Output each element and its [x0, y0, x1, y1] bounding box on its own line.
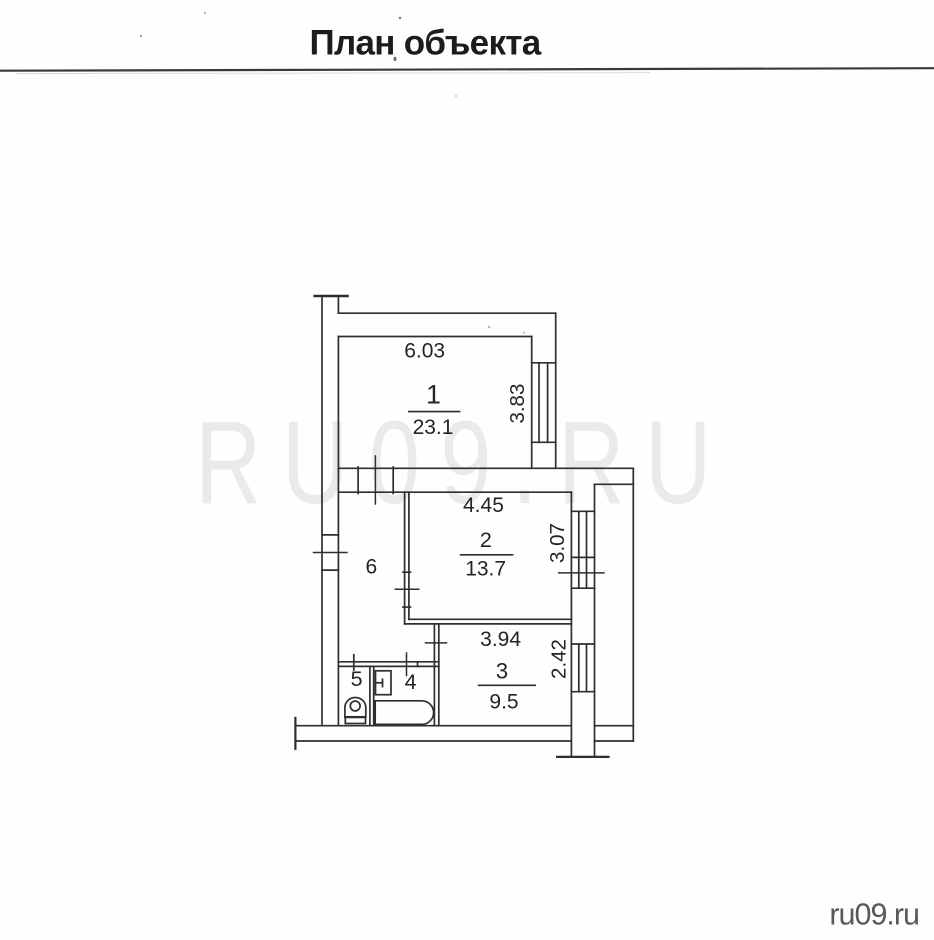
svg-text:3: 3 — [496, 659, 508, 684]
svg-text:13.7: 13.7 — [465, 557, 506, 580]
svg-text:6: 6 — [366, 556, 378, 579]
svg-text:1: 1 — [426, 380, 441, 410]
svg-text:2: 2 — [480, 528, 492, 552]
svg-text:6.03: 6.03 — [404, 340, 445, 363]
svg-text:3.07: 3.07 — [546, 523, 569, 563]
svg-text:4.45: 4.45 — [463, 494, 504, 517]
svg-text:4: 4 — [405, 670, 417, 694]
svg-text:9.5: 9.5 — [489, 691, 518, 714]
svg-text:3.94: 3.94 — [480, 628, 521, 651]
svg-text:2.42: 2.42 — [547, 639, 570, 679]
svg-text:23.1: 23.1 — [413, 416, 454, 439]
svg-text:ru09.ru: ru09.ru — [829, 897, 919, 931]
svg-text:5: 5 — [351, 667, 363, 691]
svg-text:План объекта: План объекта — [310, 24, 542, 63]
svg-text:3.83: 3.83 — [506, 384, 529, 424]
